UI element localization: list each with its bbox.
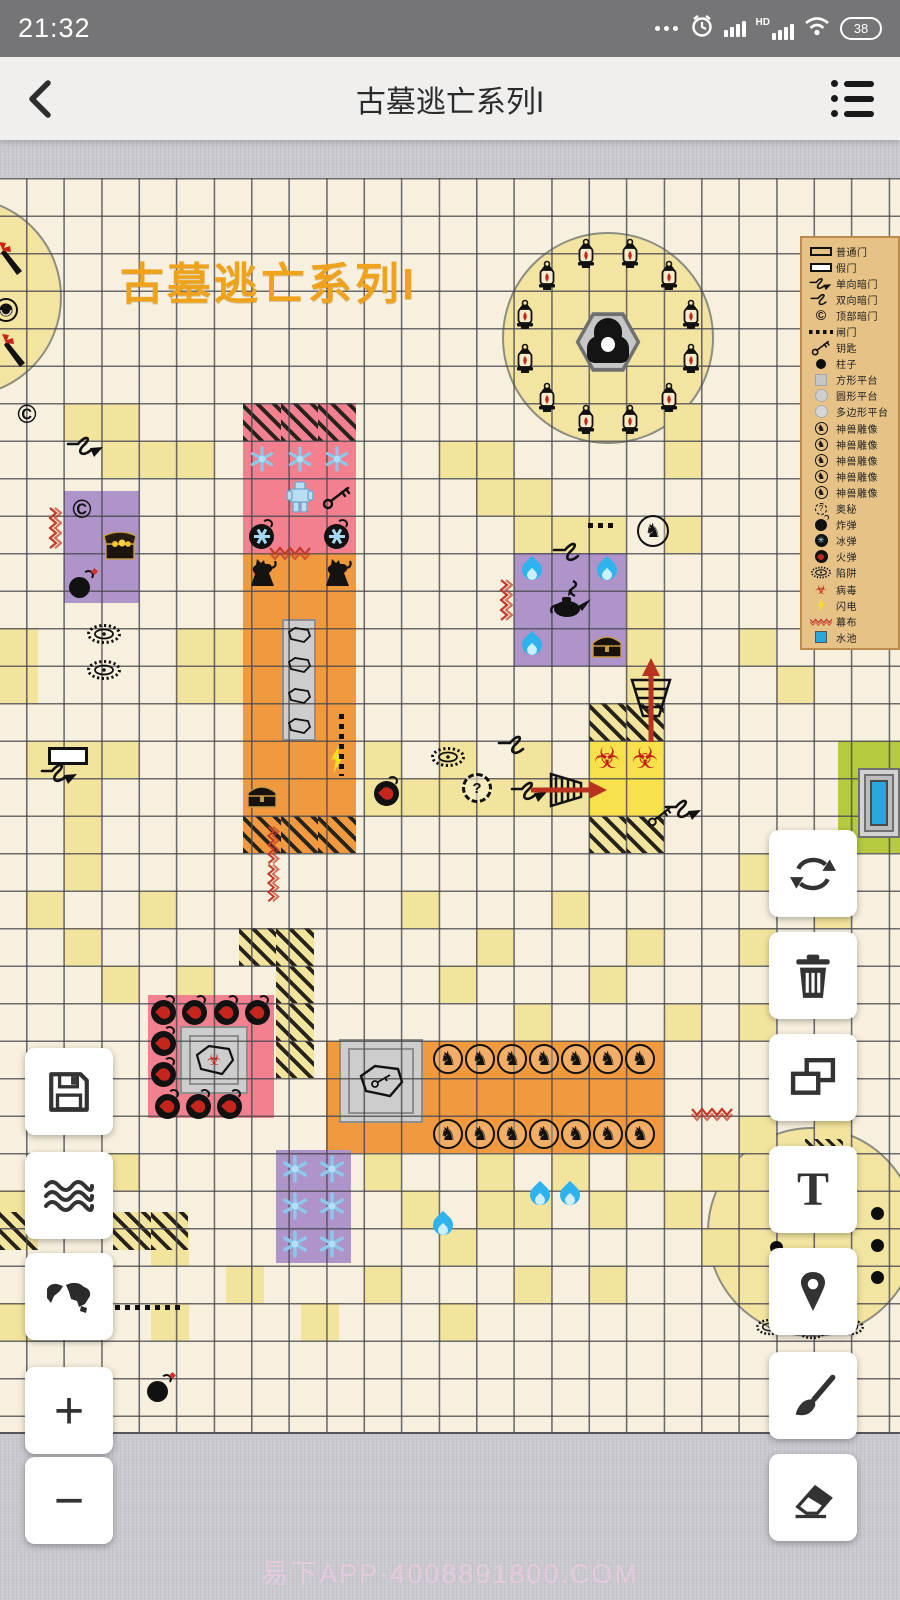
legend-label: 闪电 [836,598,857,613]
water-icon [43,1177,95,1215]
redsquiggleh-icon [806,617,836,626]
legend-item: 幕布 [806,613,898,629]
golem-icon[interactable] [285,480,315,514]
location-button[interactable] [769,1248,857,1335]
zoom-out-glyph: − [54,1475,84,1527]
floor-tile[interactable] [226,1266,264,1304]
floor-tile[interactable] [476,478,514,516]
menu-list-icon[interactable] [831,80,874,117]
status-bar: 21:32 HD 38 [0,0,900,57]
door-black-icon [806,247,836,256]
floor-tile[interactable] [514,1266,552,1304]
floor-tile[interactable] [301,1303,339,1341]
horse-statue-icon[interactable]: ♞ [625,1044,655,1074]
coffin-icon[interactable] [286,626,312,644]
firebomb-icon[interactable] [183,1088,215,1120]
redsquigglev-icon[interactable] [264,825,280,865]
arrowright-icon[interactable] [529,770,609,810]
floor-tile[interactable] [739,1116,777,1154]
floor-tile[interactable] [551,891,589,929]
torch-icon[interactable] [0,332,30,368]
key-icon[interactable] [647,805,673,827]
blueflame-icon[interactable] [520,557,544,587]
floor-tile[interactable] [176,666,214,704]
zoom-out-button[interactable]: − [25,1457,113,1544]
pillar-icon [806,359,836,369]
hatched-tile[interactable] [589,816,627,854]
horse-statue-icon[interactable]: ♞ [465,1119,495,1149]
floor-tile[interactable] [139,891,177,929]
lantern-icon[interactable] [534,260,560,294]
screen: 21:32 HD 38 古墓逃亡系列I ©©?☣♞☣☣♞♞♞♞♞♞♞♞♞♞♞♞♞… [0,0,900,1600]
hatched-tile[interactable] [243,403,281,441]
legend-item: 多边形平台 [806,404,898,420]
legend-item: 方形平台 [806,372,898,388]
battery-icon: 38 [840,17,882,40]
squigglearrow-icon[interactable] [66,430,106,460]
legend-item: 单向暗门 [806,275,898,291]
lantern-icon[interactable] [617,238,643,272]
legend-label: 幕布 [836,614,857,629]
redsquiggleh-icon[interactable] [690,1105,734,1121]
legend-label: 神兽雕像 [836,469,878,484]
floor-tile[interactable] [701,1153,739,1191]
text-glyph: T [797,1166,829,1214]
signal-icon [724,21,746,37]
lion-icon[interactable] [322,556,352,588]
rotate-icon [789,851,837,897]
legend-label: 单向暗门 [836,276,878,291]
mystery-icon: ? [806,503,836,515]
firebomb-icon[interactable] [371,775,403,807]
dashh-icon[interactable] [115,1305,181,1310]
icebomb-icon: ✳ [806,534,836,547]
key-icon[interactable] [322,484,352,510]
floor-tile[interactable] [514,478,552,516]
plat-circle-icon [806,389,836,402]
biohazard-icon: ☣ [806,583,836,596]
world-map-button[interactable] [25,1253,113,1340]
floor-tile[interactable] [64,853,102,891]
lantern-icon[interactable] [656,260,682,294]
legend-label: 水池 [836,630,857,645]
statue-icon[interactable] [0,297,19,323]
pillar-icon[interactable] [871,1239,884,1252]
redsquigglev-icon[interactable] [46,506,62,550]
trap-icon[interactable] [430,746,466,768]
coffin-icon[interactable] [286,717,312,735]
legend-item: ✳冰弹 [806,533,898,549]
floor-tile[interactable] [514,516,552,554]
beast-icon: ♞ [806,470,836,483]
floor-tile[interactable] [401,891,439,929]
door-white-icon [806,263,836,272]
legend-item: ☣病毒 [806,581,898,597]
legend-label: 神兽雕像 [836,437,878,452]
world-map-icon [43,1280,95,1314]
horse-statue-icon[interactable]: ♞ [497,1044,527,1074]
floor-tile[interactable] [626,1153,664,1191]
hatched-tile[interactable] [113,1212,151,1250]
legend-item: ♞神兽雕像 [806,420,898,436]
horse-statue-icon[interactable]: ♞ [465,1044,495,1074]
copyright-icon: © [806,307,836,323]
rotate-button[interactable] [769,830,857,917]
status-time: 21:32 [18,13,91,44]
firebomb-icon[interactable] [211,994,243,1026]
legend-item: 陷阱 [806,565,898,581]
bomb-icon[interactable] [67,569,97,599]
hatched-tile[interactable] [239,928,277,966]
legend-label: 顶部暗门 [836,308,878,323]
floor-tile[interactable] [476,1153,514,1191]
horse-statue-icon[interactable]: ♞ [529,1044,559,1074]
legend-label: 钥匙 [836,340,857,355]
floor-tile[interactable] [101,741,139,779]
legend-item: 炸弹 [806,517,898,533]
delete-icon [792,952,834,1000]
chest-icon[interactable] [590,633,624,661]
redsquigglev-icon[interactable] [497,578,513,622]
plat-square-icon [806,374,836,386]
firebomb-icon[interactable] [152,1088,184,1120]
lantern-icon[interactable] [534,382,560,416]
lantern-icon[interactable] [573,404,599,438]
icebomb-icon[interactable] [321,518,353,550]
pillar-icon[interactable] [871,1271,884,1284]
map-title-text[interactable]: 古墓逃亡系列I [120,248,417,312]
hatched-tile[interactable] [276,1041,314,1079]
floor-tile[interactable] [101,966,139,1004]
hatched-tile[interactable] [589,703,627,741]
water-button[interactable] [25,1152,113,1239]
horse-statue-icon[interactable]: ♞ [433,1119,463,1149]
floor-tile[interactable] [64,928,102,966]
pool-icon [806,631,836,643]
hatched-tile[interactable] [318,403,356,441]
squiggle-icon [806,291,836,307]
eraser-icon [789,1476,837,1520]
coffinbio-icon[interactable]: ☣ [191,1041,237,1079]
trap-icon [806,566,836,579]
legend-item: 闸门 [806,323,898,339]
snowflake-icon[interactable] [318,1230,346,1258]
blueflame-icon[interactable] [520,632,544,662]
back-button[interactable] [0,57,80,140]
horse-statue-icon[interactable]: ♞ [593,1044,623,1074]
floor-tile[interactable] [439,441,477,479]
redsquiggleh-icon[interactable] [268,544,312,560]
legend-label: 炸弹 [836,517,857,532]
firebomb-icon[interactable] [242,994,274,1026]
squigglearrow-icon [806,274,836,292]
legend-label: 多边形平台 [836,404,889,419]
status-icons: HD 38 [655,14,882,43]
legend-label: 柱子 [836,356,857,371]
floor-tile[interactable] [776,666,814,704]
bomb-icon [806,519,836,531]
firebomb-icon[interactable] [148,1025,180,1057]
trap-icon[interactable] [86,623,122,645]
floor-tile[interactable] [64,816,102,854]
map-grid[interactable]: ©©?☣♞☣☣♞♞♞♞♞♞♞♞♞♞♞♞♞♞ [0,178,900,1434]
hatched-tile[interactable] [276,1003,314,1041]
floor-tile[interactable] [0,666,38,704]
nav-bar: 古墓逃亡系列I [0,57,900,140]
floor-tile[interactable] [176,628,214,666]
blueflame-icon[interactable] [431,1212,455,1242]
legend-item: 普通门 [806,243,898,259]
hatched-tile[interactable] [276,928,314,966]
legend-item: ♞神兽雕像 [806,436,898,452]
biohazard-icon[interactable]: ☣ [630,744,660,774]
hatched-tile[interactable] [151,1212,189,1250]
horse-statue-icon[interactable]: ♞ [593,1119,623,1149]
legend-item: 柱子 [806,356,898,372]
floor-tile[interactable] [514,1003,552,1041]
beast-icon: ♞ [806,454,836,467]
snowflake-icon[interactable] [281,1155,309,1183]
wifi-icon [804,16,830,41]
hatched-tile[interactable] [281,403,319,441]
save-button[interactable] [25,1048,113,1135]
copyright-icon[interactable]: © [12,399,42,429]
plat-poly-icon [806,405,836,418]
horse-statue-icon[interactable]: ♞ [561,1044,591,1074]
floor-tile[interactable] [664,441,702,479]
floor-tile[interactable] [664,1190,702,1228]
floor-tile[interactable] [589,1190,627,1228]
snowflake-icon[interactable] [324,446,350,472]
snowflake-icon[interactable] [318,1155,346,1183]
dashh-icon[interactable] [588,523,618,528]
floor-tile[interactable] [176,441,214,479]
mystery-icon[interactable]: ? [462,773,492,803]
text-button[interactable]: T [769,1146,857,1233]
zoom-in-button[interactable]: + [25,1367,113,1454]
legend-label: 奥秘 [836,501,857,516]
hatched-tile[interactable] [276,966,314,1004]
snowflake-icon[interactable] [249,446,275,472]
legend-item: ♞神兽雕像 [806,452,898,468]
blueflame-icon[interactable] [528,1182,552,1212]
floor-tile[interactable] [26,891,64,929]
floor-tile[interactable] [739,628,777,666]
beast-icon: ♞ [806,422,836,435]
legend-item: 火弹 [806,549,898,565]
floor-tile[interactable] [439,966,477,1004]
beast-icon: ♞ [806,438,836,451]
floor-tile[interactable] [701,1228,739,1266]
firebomb-icon[interactable] [214,1088,246,1120]
legend-label: 冰弹 [836,533,857,548]
alarm-icon [690,14,714,43]
trap-icon[interactable] [86,659,122,681]
whitedoor-icon[interactable] [48,747,88,765]
floor-tile[interactable] [0,628,38,666]
pool-icon[interactable] [858,768,900,838]
floor-tile[interactable] [664,516,702,554]
lantern-icon[interactable] [617,404,643,438]
floor-tile[interactable] [589,1266,627,1304]
hatched-tile[interactable] [318,816,356,854]
horse-statue-icon[interactable]: ♞ [529,1119,559,1149]
coffin-icon[interactable] [286,687,312,705]
legend-item: 双向暗门 [806,291,898,307]
coffin-icon[interactable] [286,656,312,674]
coffinkey-icon[interactable] [354,1060,408,1102]
floor-tile[interactable] [476,441,514,479]
key-icon [806,339,836,356]
lantern-icon[interactable] [678,343,704,377]
snowflake-icon[interactable] [281,1230,309,1258]
legend-label: 普通门 [836,244,868,259]
copy-icon [788,1056,838,1100]
redsquigglev-icon[interactable] [264,863,280,903]
dashv-icon[interactable] [339,714,344,776]
floor-tile[interactable] [664,1003,702,1041]
floor-tile[interactable] [364,1266,402,1304]
floor-tile[interactable] [476,1190,514,1228]
genie-icon[interactable] [547,579,593,621]
lantern-icon[interactable] [512,343,538,377]
floor-tile[interactable] [589,516,627,554]
more-dots-icon [655,26,678,31]
floor-tile[interactable] [476,928,514,966]
floor-tile[interactable] [401,778,439,816]
copyright-icon[interactable]: © [67,494,97,524]
legend-item: 假门 [806,259,898,275]
legend-item: 闪电 [806,597,898,613]
eraser-button[interactable] [769,1454,857,1541]
pillar-icon[interactable] [871,1207,884,1220]
legend-label: 神兽雕像 [836,485,878,500]
floor-tile[interactable] [589,966,627,1004]
legend-item: ?奥秘 [806,501,898,517]
hd-signal-icon: HD [756,18,794,40]
legend-item: 圆形平台 [806,388,898,404]
horse-statue-icon[interactable]: ♞ [561,1119,591,1149]
firebomb-icon[interactable] [148,994,180,1026]
reaper-icon[interactable] [575,311,641,373]
save-icon [46,1069,92,1115]
chest-icon[interactable] [245,783,279,811]
copy-button[interactable] [769,1034,857,1121]
snowflake-icon[interactable] [287,446,313,472]
floor-tile[interactable] [101,403,139,441]
floor-tile[interactable] [364,741,402,779]
legend-label: 圆形平台 [836,388,878,403]
legend-label: 病毒 [836,582,857,597]
hatched-tile[interactable] [281,816,319,854]
floor-tile[interactable] [101,441,139,479]
lion-icon[interactable] [247,556,277,588]
floor-tile[interactable] [626,591,664,629]
squiggle-icon[interactable] [497,731,533,757]
legend-label: 神兽雕像 [836,453,878,468]
firebomb-icon[interactable] [179,994,211,1026]
lantern-icon[interactable] [656,382,682,416]
chestopen-icon[interactable] [102,532,138,562]
floor-tile[interactable] [439,1303,477,1341]
torch-icon[interactable] [0,240,27,276]
legend-item: 水池 [806,629,898,645]
horse-statue-icon[interactable]: ♞ [433,1044,463,1074]
legend-label: 双向暗门 [836,292,878,307]
floor-tile[interactable] [626,928,664,966]
delete-button[interactable] [769,932,857,1019]
snowflake-icon[interactable] [318,1192,346,1220]
brush-button[interactable] [769,1352,857,1439]
firebomb-icon[interactable] [148,1056,180,1088]
legend-label: 假门 [836,260,857,275]
floor-tile[interactable] [364,1153,402,1191]
horse-statue-icon[interactable]: ♞ [497,1119,527,1149]
page-title: 古墓逃亡系列I [150,77,750,121]
legend-item: ♞神兽雕像 [806,468,898,484]
legend-label: 方形平台 [836,372,878,387]
zoom-in-glyph: + [54,1385,84,1437]
legend-label: 火弹 [836,549,857,564]
lantern-icon[interactable] [573,238,599,272]
horsecircle-icon[interactable]: ♞ [637,515,669,547]
legend-label: 神兽雕像 [836,421,878,436]
snowflake-icon[interactable] [281,1192,309,1220]
horse-statue-icon[interactable]: ♞ [625,1119,655,1149]
location-icon [792,1268,834,1316]
dash-icon [806,330,836,334]
blueflame-icon[interactable] [558,1182,582,1212]
legend-label: 陷阱 [836,565,857,580]
legend-label: 闸门 [836,324,857,339]
squiggle-icon[interactable] [552,538,588,564]
lantern-icon[interactable] [512,299,538,333]
floor-tile[interactable] [139,441,177,479]
lantern-icon[interactable] [678,299,704,333]
firebomb-icon [806,550,836,563]
legend-item: 钥匙 [806,340,898,356]
blueflame-icon[interactable] [595,557,619,587]
legend-panel: 普通门假门单向暗门双向暗门©顶部暗门闸门钥匙柱子方形平台圆形平台多边形平台♞神兽… [800,236,900,650]
watermark: 易下APP·4008891800.COM [0,1552,900,1591]
lightning-icon [806,598,836,612]
beast-icon: ♞ [806,486,836,499]
legend-item: ♞神兽雕像 [806,484,898,500]
bomb-icon[interactable] [145,1373,175,1403]
legend-item: ©顶部暗门 [806,307,898,323]
arrowup-icon[interactable] [628,656,674,744]
brush-icon [789,1372,837,1420]
